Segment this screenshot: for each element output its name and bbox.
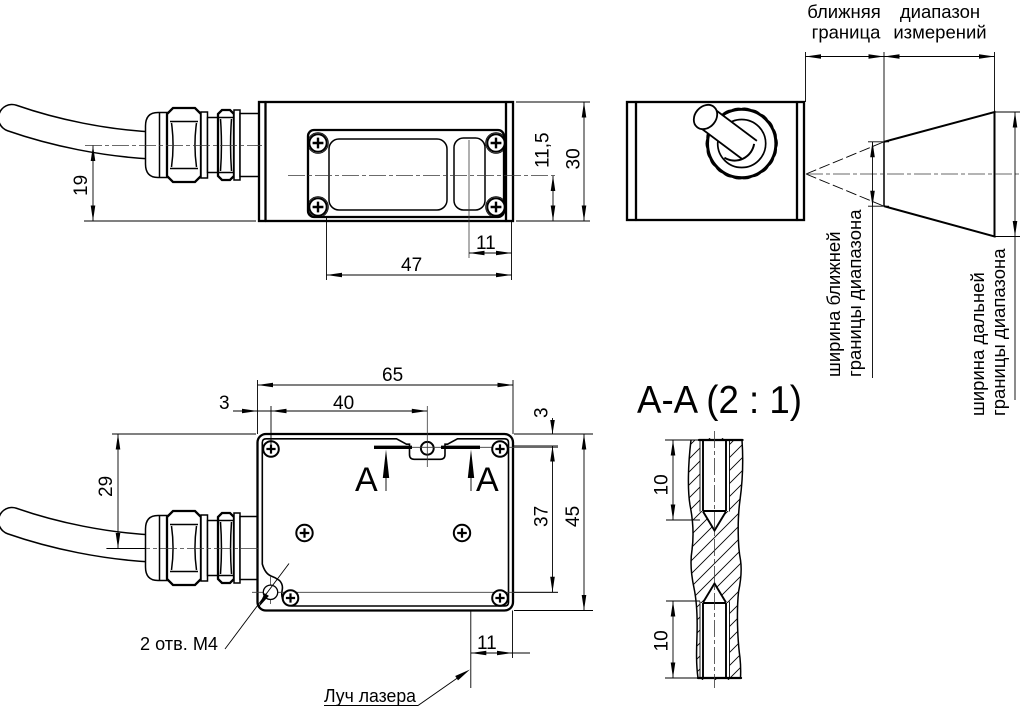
svg-text:ширина дальней: ширина дальней xyxy=(967,272,988,416)
svg-text:30: 30 xyxy=(564,148,585,169)
svg-text:ближняя: ближняя xyxy=(807,1,881,22)
svg-text:2 отв. М4: 2 отв. М4 xyxy=(140,633,218,654)
svg-text:11: 11 xyxy=(476,233,496,254)
svg-text:11: 11 xyxy=(477,633,497,654)
svg-text:10: 10 xyxy=(652,630,673,651)
svg-text:границы диапазона: границы диапазона xyxy=(988,248,1009,416)
svg-text:измерений: измерений xyxy=(893,22,986,43)
svg-text:A-A (2 : 1): A-A (2 : 1) xyxy=(637,379,802,422)
svg-text:граница: граница xyxy=(812,22,881,43)
svg-text:ширина ближней: ширина ближней xyxy=(823,231,844,377)
svg-text:19: 19 xyxy=(71,175,92,196)
svg-text:11,5: 11,5 xyxy=(533,132,554,168)
svg-text:Луч лазера: Луч лазера xyxy=(324,685,417,706)
svg-text:3: 3 xyxy=(532,407,553,418)
svg-text:3: 3 xyxy=(219,393,230,414)
svg-text:границы диапазона: границы диапазона xyxy=(844,209,865,377)
svg-text:47: 47 xyxy=(401,255,422,276)
svg-text:29: 29 xyxy=(96,476,117,497)
svg-text:37: 37 xyxy=(532,506,553,527)
svg-text:45: 45 xyxy=(563,506,584,527)
svg-text:диапазон: диапазон xyxy=(900,1,980,22)
svg-text:40: 40 xyxy=(333,393,354,414)
svg-text:A: A xyxy=(476,461,499,499)
svg-text:65: 65 xyxy=(382,365,403,386)
svg-text:A: A xyxy=(355,461,378,499)
svg-text:10: 10 xyxy=(652,474,673,495)
